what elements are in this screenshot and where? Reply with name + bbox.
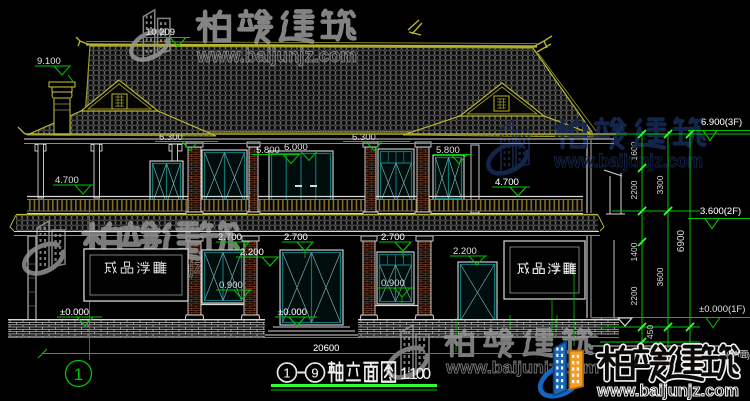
svg-text:3.600(2F): 3.600(2F): [700, 206, 741, 217]
svg-text:9.100: 9.100: [37, 56, 61, 67]
svg-text:3300: 3300: [655, 175, 665, 194]
svg-text:www.baijunjz.com: www.baijunjz.com: [553, 151, 703, 171]
svg-text:2.200: 2.200: [453, 246, 477, 257]
svg-text:1:100: 1:100: [400, 366, 431, 383]
svg-text:www.baijunjz.com: www.baijunjz.com: [596, 381, 739, 400]
svg-text:2.200: 2.200: [240, 247, 264, 258]
svg-text:2.700: 2.700: [284, 232, 308, 243]
svg-text:1: 1: [74, 365, 83, 384]
svg-text:4.700: 4.700: [55, 175, 79, 186]
svg-text:2.700: 2.700: [381, 232, 405, 243]
svg-text:±0.000: ±0.000: [60, 307, 89, 318]
svg-text:0.900: 0.900: [381, 278, 405, 289]
svg-text:2200: 2200: [629, 180, 639, 199]
svg-text:1400: 1400: [629, 242, 639, 261]
svg-text:(: (: [726, 350, 729, 360]
svg-text:±0.000: ±0.000: [278, 307, 307, 318]
svg-text:450: 450: [645, 325, 655, 339]
svg-text:1: 1: [283, 366, 290, 381]
svg-text:4.700: 4.700: [495, 177, 519, 188]
svg-text:9: 9: [311, 366, 318, 381]
svg-text:6.900(3F): 6.900(3F): [701, 117, 742, 128]
svg-text:2.700: 2.700: [218, 232, 242, 243]
svg-text:20600: 20600: [313, 343, 339, 354]
svg-text:2200: 2200: [629, 286, 639, 305]
svg-text:www.baijunjz.com: www.baijunjz.com: [196, 46, 357, 67]
svg-text:3600: 3600: [655, 267, 665, 286]
svg-text:0.900: 0.900: [219, 280, 243, 291]
svg-text:6900: 6900: [676, 229, 687, 252]
svg-text:10.209: 10.209: [146, 27, 175, 38]
svg-text:±0.000(1F): ±0.000(1F): [699, 304, 745, 315]
